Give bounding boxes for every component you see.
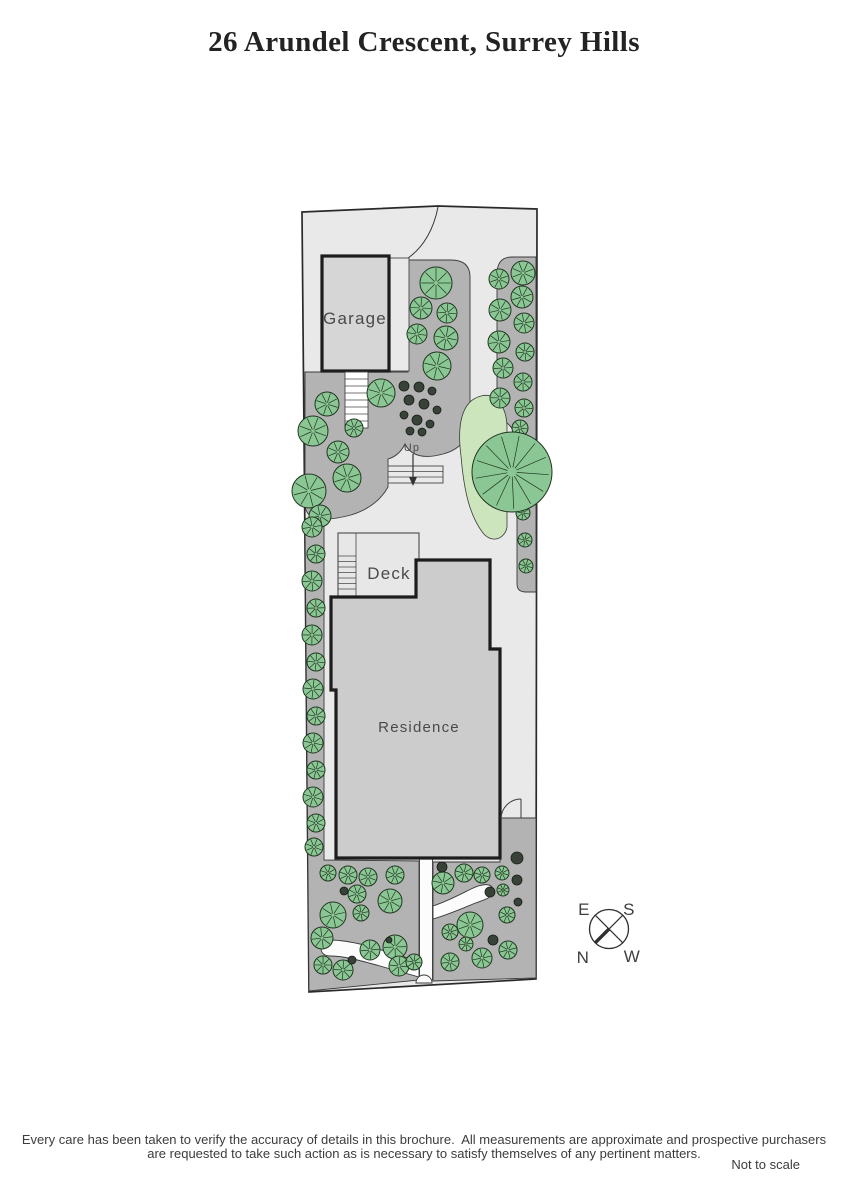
tree: [367, 379, 395, 407]
tree: [327, 441, 349, 463]
bush: [419, 399, 429, 409]
tree: [499, 941, 517, 959]
bush: [404, 395, 414, 405]
tree: [302, 571, 322, 591]
tree: [307, 761, 325, 779]
garage-label: Garage: [323, 309, 387, 328]
tree: [514, 313, 534, 333]
bush: [340, 887, 348, 895]
bush: [386, 937, 392, 943]
tree: [303, 733, 323, 753]
bush: [400, 411, 408, 419]
tree: [519, 559, 533, 573]
bush: [512, 875, 522, 885]
tree: [320, 902, 346, 928]
bush: [348, 956, 356, 964]
tree: [455, 864, 473, 882]
tree: [514, 373, 532, 391]
tree: [307, 545, 325, 563]
tree: [489, 269, 509, 289]
bush: [485, 887, 495, 897]
tree: [407, 324, 427, 344]
tree: [434, 326, 458, 350]
tree: [511, 286, 533, 308]
bush: [426, 420, 434, 428]
tree: [515, 399, 533, 417]
tree: [493, 358, 513, 378]
bush: [414, 382, 424, 392]
scale-note: Not to scale: [731, 1157, 800, 1172]
big-tree: [472, 432, 552, 512]
tree: [360, 940, 380, 960]
tree: [489, 299, 511, 321]
tree: [345, 419, 363, 437]
tree: [333, 464, 361, 492]
deck-label: Deck: [367, 564, 411, 583]
tree: [495, 866, 509, 880]
tree: [311, 927, 333, 949]
tree: [432, 872, 454, 894]
tree: [499, 907, 515, 923]
tree: [314, 956, 332, 974]
tree: [490, 388, 510, 408]
tree: [298, 416, 328, 446]
tree: [359, 868, 377, 886]
tree: [474, 867, 490, 883]
bush: [488, 935, 498, 945]
bush: [514, 898, 522, 906]
bush: [399, 381, 409, 391]
disclaimer-line1: Every care has been taken to verify the …: [0, 1133, 848, 1147]
tree: [442, 924, 458, 940]
tree: [348, 885, 366, 903]
compass-south-label: S: [623, 900, 635, 919]
residence: [331, 560, 500, 858]
tree: [420, 267, 452, 299]
compass-east-label: E: [578, 900, 590, 919]
brochure-page: 26 Arundel Crescent, Surrey Hills: [0, 0, 848, 1200]
tree: [320, 865, 336, 881]
tree: [511, 261, 535, 285]
tree: [472, 948, 492, 968]
bush: [433, 406, 441, 414]
bush: [428, 387, 436, 395]
up-label: Up: [404, 442, 420, 454]
disclaimer: Every care has been taken to verify the …: [0, 1133, 848, 1160]
tree: [303, 679, 323, 699]
tree: [441, 953, 459, 971]
tree: [459, 937, 473, 951]
tree: [307, 707, 325, 725]
bush: [437, 862, 447, 872]
garage-side-extension: [389, 258, 409, 371]
tree: [437, 303, 457, 323]
tree: [315, 392, 339, 416]
tree: [457, 912, 483, 938]
tree: [353, 905, 369, 921]
tree: [410, 297, 432, 319]
bush: [412, 415, 422, 425]
tree: [302, 625, 322, 645]
tree: [386, 866, 404, 884]
disclaimer-line2: are requested to take such action as is …: [0, 1147, 848, 1161]
tree: [307, 814, 325, 832]
tree: [339, 866, 357, 884]
tree: [292, 474, 326, 508]
tree: [406, 954, 422, 970]
residence-label: Residence: [378, 719, 460, 736]
compass-west-label: W: [624, 947, 641, 966]
tree: [497, 884, 509, 896]
tree: [488, 331, 510, 353]
tree: [305, 838, 323, 856]
tree: [389, 956, 409, 976]
tree: [307, 653, 325, 671]
site-plan: Garage Deck Residence Up E S N W: [0, 0, 848, 1200]
bush: [406, 427, 414, 435]
tree: [307, 599, 325, 617]
compass: E S N W: [577, 900, 641, 967]
tree: [378, 889, 402, 913]
bush: [511, 852, 523, 864]
tree: [302, 517, 322, 537]
compass-north-label: N: [577, 948, 590, 967]
tree: [423, 352, 451, 380]
tree: [303, 787, 323, 807]
tree: [518, 533, 532, 547]
tree: [516, 343, 534, 361]
bush: [418, 428, 426, 436]
